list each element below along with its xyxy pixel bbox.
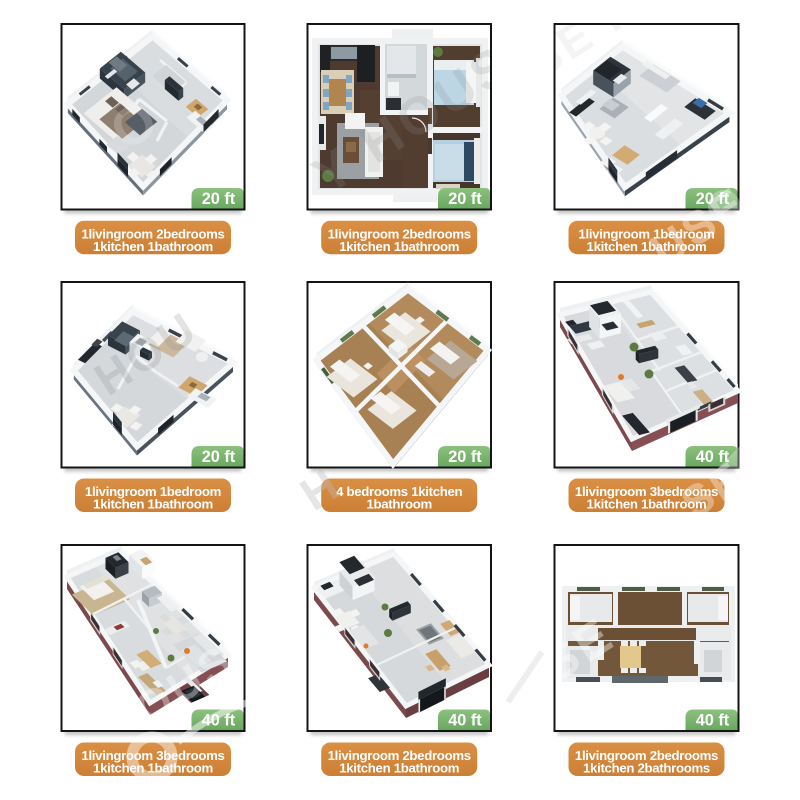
svg-text:1kitchen 1bathroom: 1kitchen 1bathroom bbox=[339, 761, 459, 776]
svg-text:40 ft: 40 ft bbox=[696, 712, 730, 730]
svg-text:1kitchen 1bathroom: 1kitchen 1bathroom bbox=[93, 497, 213, 512]
svg-text:1kitchen 2bathrooms: 1kitchen 2bathrooms bbox=[583, 761, 710, 776]
svg-text:20 ft: 20 ft bbox=[202, 448, 236, 466]
svg-text:40 ft: 40 ft bbox=[448, 712, 482, 730]
svg-text:1bathroom: 1bathroom bbox=[366, 497, 431, 512]
svg-text:20 ft: 20 ft bbox=[448, 190, 482, 208]
svg-text:20 ft: 20 ft bbox=[202, 190, 236, 208]
svg-text:1kitchen 1bathroom: 1kitchen 1bathroom bbox=[339, 239, 459, 254]
svg-text:1kitchen 1bathroom: 1kitchen 1bathroom bbox=[93, 239, 213, 254]
svg-text:20 ft: 20 ft bbox=[448, 448, 482, 466]
